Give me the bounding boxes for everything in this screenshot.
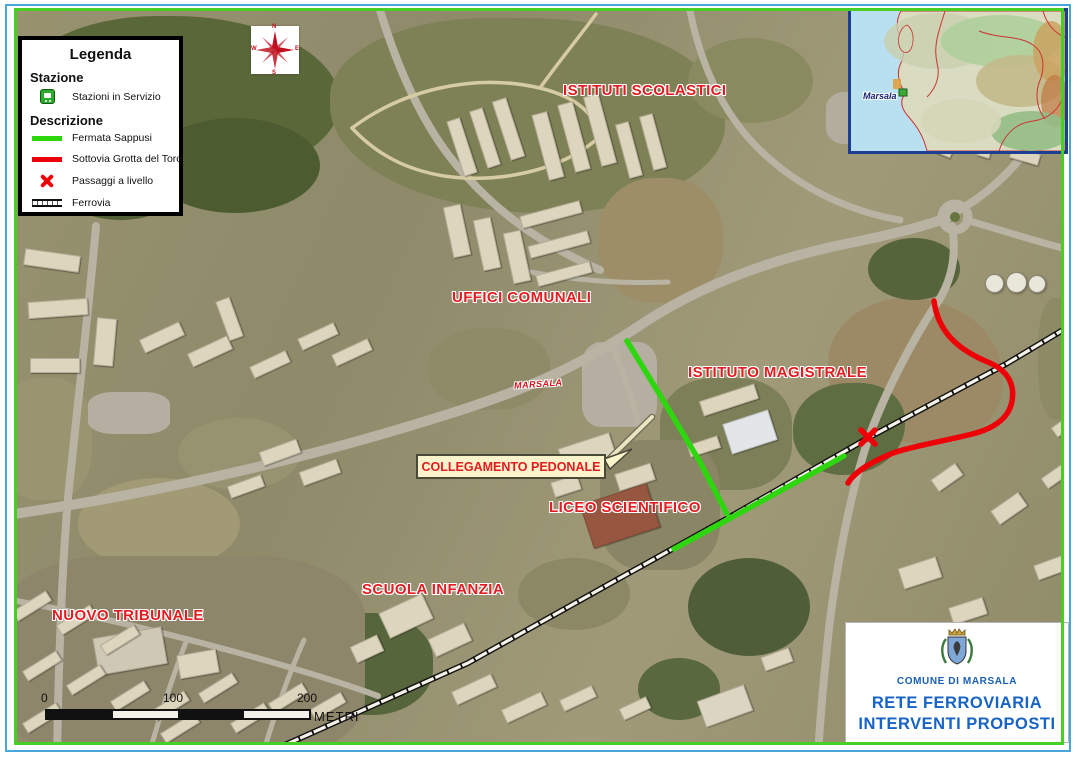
scale-tick-200: 200	[297, 691, 317, 705]
map-label-liceo-scientifico: LICEO SCIENTIFICO	[549, 499, 701, 516]
scale-tick-0: 0	[41, 691, 48, 705]
compass-south-label: S	[272, 70, 276, 76]
railway-icon	[32, 199, 62, 207]
legend-item-fermata-sappusi: Fermata Sappusi	[32, 132, 171, 144]
locator-inset-map: Marsala	[848, 8, 1068, 154]
compass-star-icon	[251, 26, 299, 74]
map-label-istituto-magistrale: ISTITUTO MAGISTRALE	[688, 364, 867, 381]
station-icon	[40, 89, 55, 104]
scale-unit-label: METRI	[314, 709, 359, 724]
scale-bar-segments	[45, 709, 311, 720]
green-line-icon	[32, 136, 62, 141]
legend-item-label: Sottovia Grotta del Toro	[72, 153, 182, 165]
inset-marsala-marker	[899, 89, 907, 96]
legend-item-label: Passaggi a livello	[72, 175, 153, 187]
scale-tick-100: 100	[163, 691, 183, 705]
inset-terrain	[851, 11, 1065, 151]
legend-item-label: Stazioni in Servizio	[72, 91, 161, 103]
legend-item-label: Ferrovia	[72, 197, 111, 209]
legend-item-passaggi: Passaggi a livello	[32, 174, 171, 188]
compass-north-label: N	[272, 24, 276, 30]
map-label-scuola-infanzia: SCUOLA INFANZIA	[362, 581, 504, 598]
map-label-uffici-comunali: UFFICI COMUNALI	[452, 289, 591, 306]
legend-item-label: Fermata Sappusi	[72, 132, 152, 144]
map-sheet: ISTITUTI SCOLASTICI UFFICI COMUNALI ISTI…	[0, 0, 1078, 757]
map-label-istituti-scolastici: ISTITUTI SCOLASTICI	[563, 82, 726, 99]
legend: Legenda Stazione Stazioni in Servizio De…	[18, 36, 183, 216]
callout-collegamento-pedonale: COLLEGAMENTO PEDONALE	[416, 454, 606, 479]
title-block: COMUNE DI MARSALA RETE FERROVIARIA INTER…	[845, 622, 1069, 743]
compass-east-label: E	[295, 46, 299, 52]
red-x-icon	[40, 174, 54, 188]
map-label-nuovo-tribunale: NUOVO TRIBUNALE	[52, 607, 204, 624]
callout-pointer	[602, 447, 636, 471]
legend-item-stazioni: Stazioni in Servizio	[32, 89, 171, 104]
compass-west-label: W	[251, 46, 257, 52]
municipality-label: COMUNE DI MARSALA	[846, 676, 1068, 687]
sottovia-grotta-del-toro-line	[848, 301, 1013, 483]
red-line-icon	[32, 157, 62, 162]
legend-section-descrizione: Descrizione	[30, 113, 171, 128]
marsala-coat-of-arms-icon	[934, 627, 980, 669]
compass-rose: N E S W	[251, 26, 299, 74]
map-title-line1: RETE FERROVIARIA	[846, 693, 1068, 714]
legend-item-ferrovia: Ferrovia	[32, 197, 171, 209]
legend-section-stazione: Stazione	[30, 70, 171, 85]
legend-item-sottovia: Sottovia Grotta del Toro	[32, 153, 171, 165]
legend-title: Legenda	[30, 46, 171, 63]
inset-place-label: Marsala	[863, 91, 897, 101]
callout-text: COLLEGAMENTO PEDONALE	[422, 460, 601, 474]
map-title-line2: INTERVENTI PROPOSTI	[846, 714, 1068, 735]
